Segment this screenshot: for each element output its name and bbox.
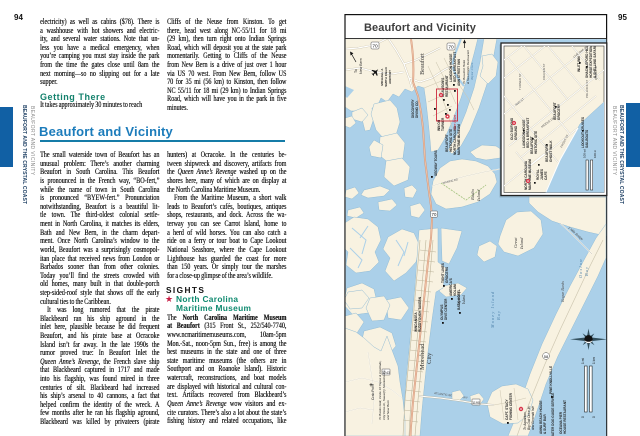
svg-text:GROCERY: GROCERY (557, 103, 561, 120)
svg-text:Great: Great (513, 237, 518, 248)
svg-text:Beaufort: Beaufort (419, 53, 426, 75)
svg-text:Island: Island (519, 237, 524, 250)
svg-text:FISHING CENTER: FISHING CENTER (509, 392, 513, 420)
svg-text:POLLOCK ST: POLLOCK ST (585, 80, 589, 98)
svg-text:DIVE CENTER: DIVE CENTER (444, 298, 448, 320)
svg-text:58: 58 (544, 354, 549, 359)
svg-text:CRAVEN ST: CRAVEN ST (542, 63, 546, 80)
svg-text:1 km: 1 km (592, 357, 596, 364)
svg-text:100 yd: 100 yd (583, 149, 587, 158)
svg-text:GROUND: GROUND (514, 125, 518, 140)
svg-text:Bay: Bay (496, 310, 501, 320)
svg-text:Beaufort and Vicinity: Beaufort and Vicinity (364, 22, 477, 34)
svg-text:Radio: Radio (470, 188, 475, 201)
svg-text:To: To (354, 69, 358, 73)
svg-text:TURNER ST: TURNER ST (518, 73, 522, 90)
svg-text:70: 70 (372, 44, 378, 50)
svg-text:PINE KNOLLVILLE: PINE KNOLLVILLE (549, 366, 553, 394)
svg-text:HISTORIC SITE: HISTORIC SITE (534, 131, 538, 154)
svg-text:See Inset: See Inset (453, 114, 457, 130)
svg-text:Bay: Bay (584, 266, 589, 276)
svg-text:1190: 1190 (472, 401, 480, 405)
svg-text:0: 0 (592, 416, 596, 418)
svg-text:HOUSE RESTAURANT: HOUSE RESTAURANT (563, 400, 567, 434)
svg-text:SAILBOATS: SAILBOATS (585, 130, 589, 148)
svg-text:& SHELLING SAFARI: & SHELLING SAFARI (593, 46, 597, 78)
svg-text:INLET INN: INLET INN (577, 56, 581, 72)
svg-text:Morehead: Morehead (419, 343, 426, 370)
svg-text:ANN STREET INN: ANN STREET INN (457, 59, 461, 86)
svg-text:AIRPORT: AIRPORT (388, 70, 392, 84)
svg-text:CAFE: CAFE (544, 171, 548, 180)
svg-text:Money Island: Money Island (490, 291, 495, 329)
svg-text:and New Bern: and New Bern (386, 400, 390, 420)
svg-text:MARITIME MUSEUM: MARITIME MUSEUM (528, 159, 532, 190)
svg-text:70: 70 (432, 212, 437, 217)
svg-text:and Emerald Isle: and Emerald Isle (531, 406, 535, 430)
svg-text:Bogue Banks: Bogue Banks (560, 281, 565, 302)
svg-text:TURNER: TURNER (441, 117, 445, 131)
svg-text:& SURF BAR: & SURF BAR (543, 414, 547, 434)
svg-text:Island: Island (476, 189, 481, 202)
svg-text:DIVING CO.: DIVING CO. (415, 100, 419, 118)
svg-text:RUDDY DUCK TAVERN: RUDDY DUCK TAVERN (418, 296, 422, 332)
svg-text:SEGWAY TOURS: SEGWAY TOURS (434, 150, 438, 176)
svg-text:City: City (426, 352, 433, 364)
svg-text:Onslow: Onslow (578, 258, 583, 278)
svg-text:+: + (369, 383, 373, 389)
svg-text:MARITIME MUSEUM: MARITIME MUSEUM (457, 124, 461, 155)
svg-text:WATER DOG GUIDE SERVICE: WATER DOG GUIDE SERVICE (551, 393, 555, 436)
svg-text:1 mi: 1 mi (581, 358, 585, 364)
svg-text:New Bern: New Bern (359, 58, 363, 74)
svg-text:Taylor Creek: Taylor Creek (470, 62, 474, 80)
svg-text:Island: Island (462, 295, 466, 305)
svg-text:0: 0 (581, 416, 585, 418)
svg-text:100 m: 100 m (593, 149, 597, 158)
svg-text:GHOST WALK: GHOST WALK (549, 140, 553, 162)
svg-text:70: 70 (448, 45, 454, 51)
svg-text:Sugarloaf: Sugarloaf (457, 291, 461, 306)
